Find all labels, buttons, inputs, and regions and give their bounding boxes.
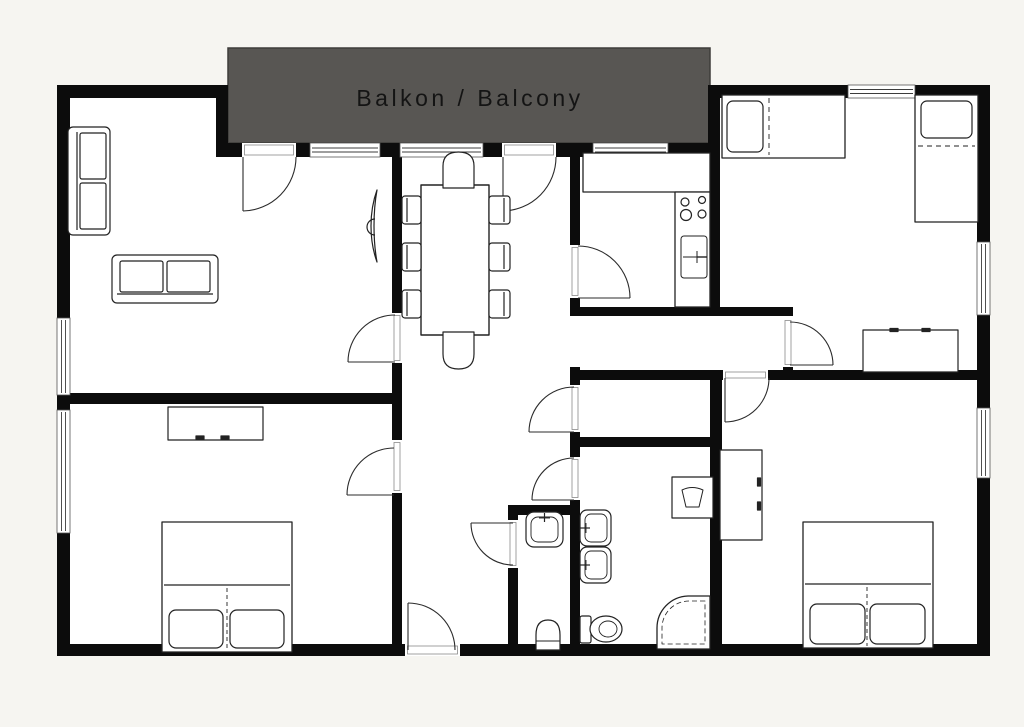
window-living-left xyxy=(57,318,70,395)
floor-plan: Balkon / Balcony xyxy=(0,0,1024,727)
window-bedroom-right-bottom xyxy=(977,408,990,478)
window-living-balcony xyxy=(310,143,380,157)
washbasin-1 xyxy=(580,510,611,546)
window-dining-balcony xyxy=(400,143,483,157)
dining-chair-bottom xyxy=(443,332,474,369)
wardrobe xyxy=(720,450,762,540)
washing-machine xyxy=(672,477,713,518)
balcony-label: Balkon / Balcony xyxy=(356,85,583,111)
sideboard xyxy=(863,329,958,373)
window-bedroom-left xyxy=(57,410,70,533)
toilet-bathroom xyxy=(580,616,622,643)
double-bed-right xyxy=(803,522,933,648)
sofa-side xyxy=(68,127,110,235)
washbasin-2 xyxy=(580,547,611,583)
dresser xyxy=(168,407,263,440)
dining-chairs-right xyxy=(489,196,510,318)
sofa-main xyxy=(112,255,218,303)
single-bed-2 xyxy=(915,95,978,222)
double-bed-left xyxy=(162,522,292,652)
single-bed-1 xyxy=(722,95,845,158)
wc-basin xyxy=(526,512,563,547)
wc-toilet xyxy=(536,620,560,650)
dining-chairs-left xyxy=(402,196,421,318)
dining-table xyxy=(421,185,489,335)
window-bedroom-right-top xyxy=(977,242,990,315)
window-top-bedroom xyxy=(848,85,915,98)
dining-chair-top xyxy=(443,152,474,188)
balcony: Balkon / Balcony xyxy=(228,48,710,143)
